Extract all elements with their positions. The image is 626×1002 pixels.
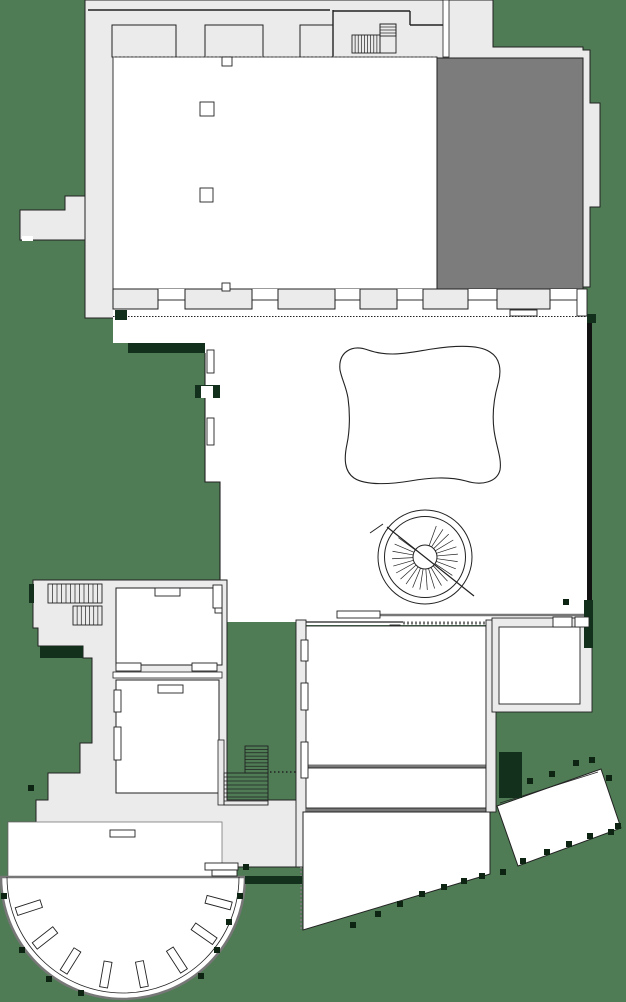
courtyard-east-wall <box>587 322 592 618</box>
stair-side-wall <box>218 740 224 805</box>
floor-plan-drawing <box>0 0 626 1002</box>
top-passage-slot <box>443 0 449 57</box>
main-hall-room <box>113 57 437 289</box>
floor-plan-stage <box>0 0 626 1002</box>
south-room-2 <box>306 768 486 808</box>
dark-gallery-room <box>437 58 583 289</box>
south-room-1 <box>306 626 486 765</box>
room-divider-slot <box>113 672 222 678</box>
room-a <box>116 588 222 665</box>
room-b <box>116 680 219 793</box>
east-room <box>499 627 580 704</box>
